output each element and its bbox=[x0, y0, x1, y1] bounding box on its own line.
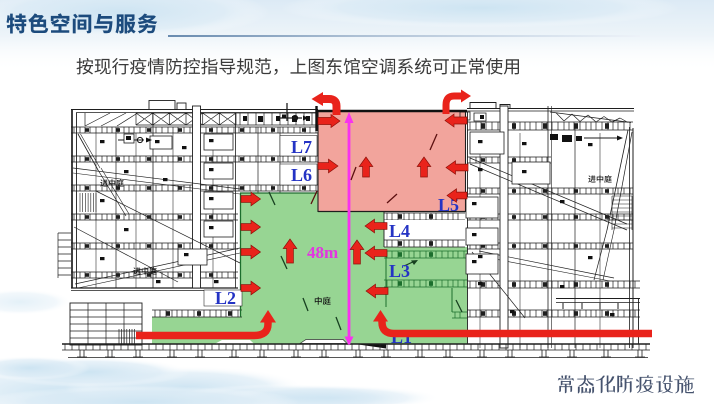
svg-text:L2: L2 bbox=[215, 288, 236, 308]
svg-text:L6: L6 bbox=[291, 165, 312, 185]
svg-text:L3: L3 bbox=[389, 261, 410, 281]
svg-text:L4: L4 bbox=[389, 221, 410, 241]
svg-text:L7: L7 bbox=[291, 137, 312, 157]
svg-text:48m: 48m bbox=[307, 243, 338, 262]
